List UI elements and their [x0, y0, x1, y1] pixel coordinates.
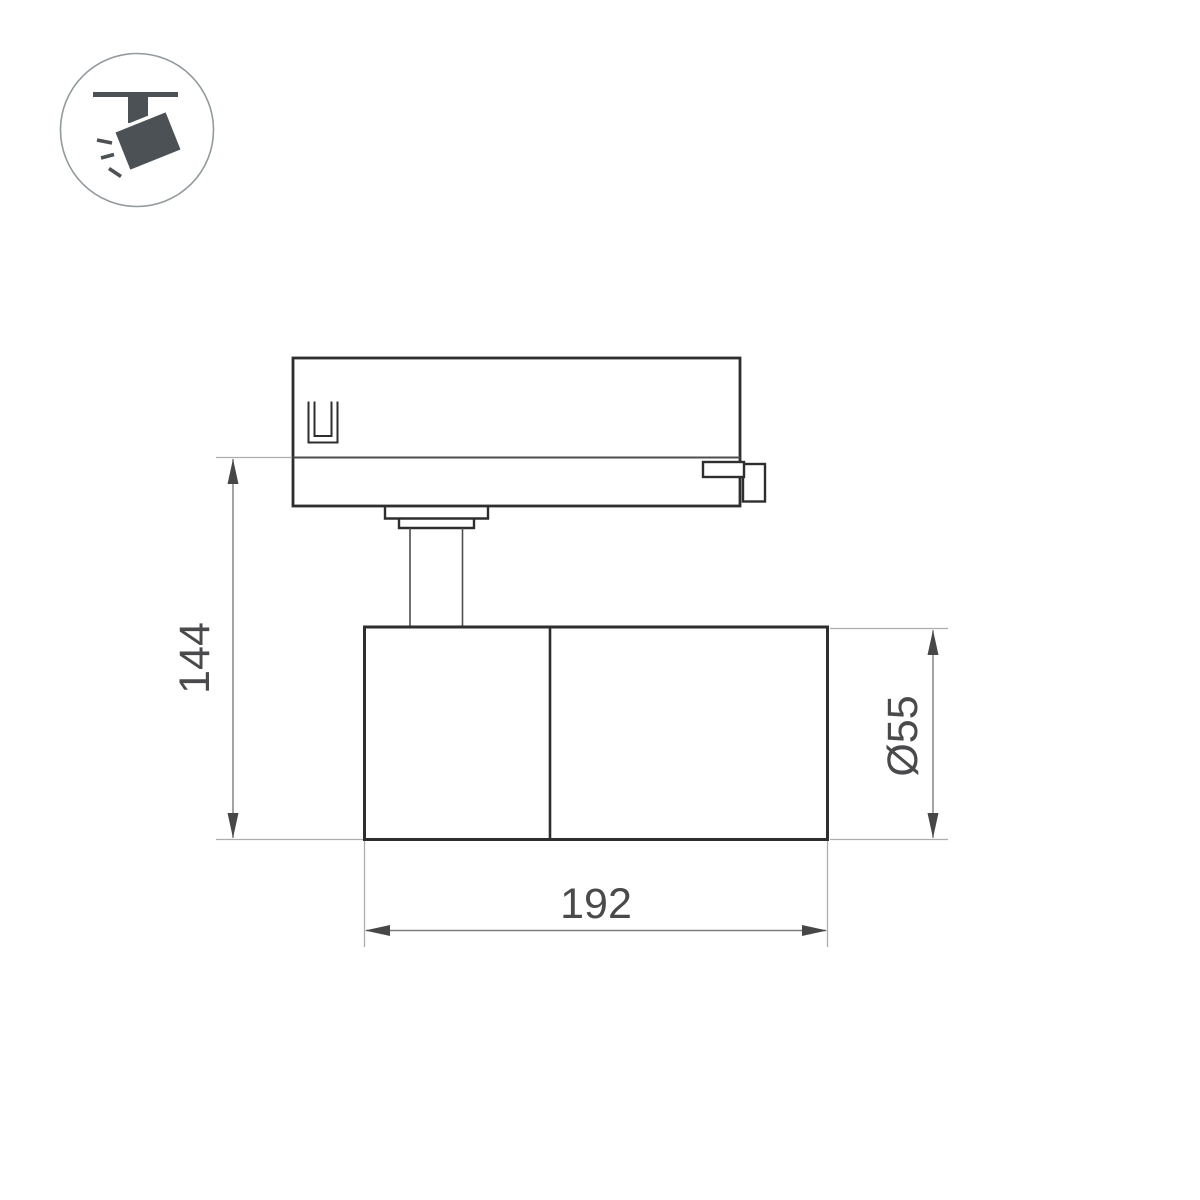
diameter-arrow-down [928, 813, 939, 838]
technical-drawing-canvas: 144 Ø55 192 [0, 0, 1200, 1200]
adapter-mount-flange-lower [399, 519, 474, 529]
track-adapter [293, 358, 765, 627]
length-arrow-left [365, 925, 390, 936]
lamp-body [365, 627, 828, 840]
adapter-mount-flange-upper [385, 506, 488, 519]
lamp-body-outline [365, 627, 828, 840]
height-dimension-label: 144 [171, 622, 219, 694]
height-arrow-down [228, 813, 239, 838]
length-dimension-label: 192 [560, 880, 632, 928]
adapter-latch-lever [703, 462, 744, 477]
length-dimension: 192 [365, 841, 828, 947]
diameter-dimension-label: Ø55 [879, 695, 927, 776]
drawing-page: 144 Ø55 192 [0, 0, 1200, 1200]
diameter-arrow-up [928, 630, 939, 655]
adapter-housing-outline [293, 358, 740, 506]
diameter-dimension: Ø55 [830, 629, 948, 840]
height-dimension: 144 [171, 458, 363, 840]
ceiling-track-spotlight-icon [61, 54, 214, 207]
length-arrow-right [802, 925, 827, 936]
height-arrow-up [228, 459, 239, 484]
adapter-latch-knob [743, 464, 765, 502]
